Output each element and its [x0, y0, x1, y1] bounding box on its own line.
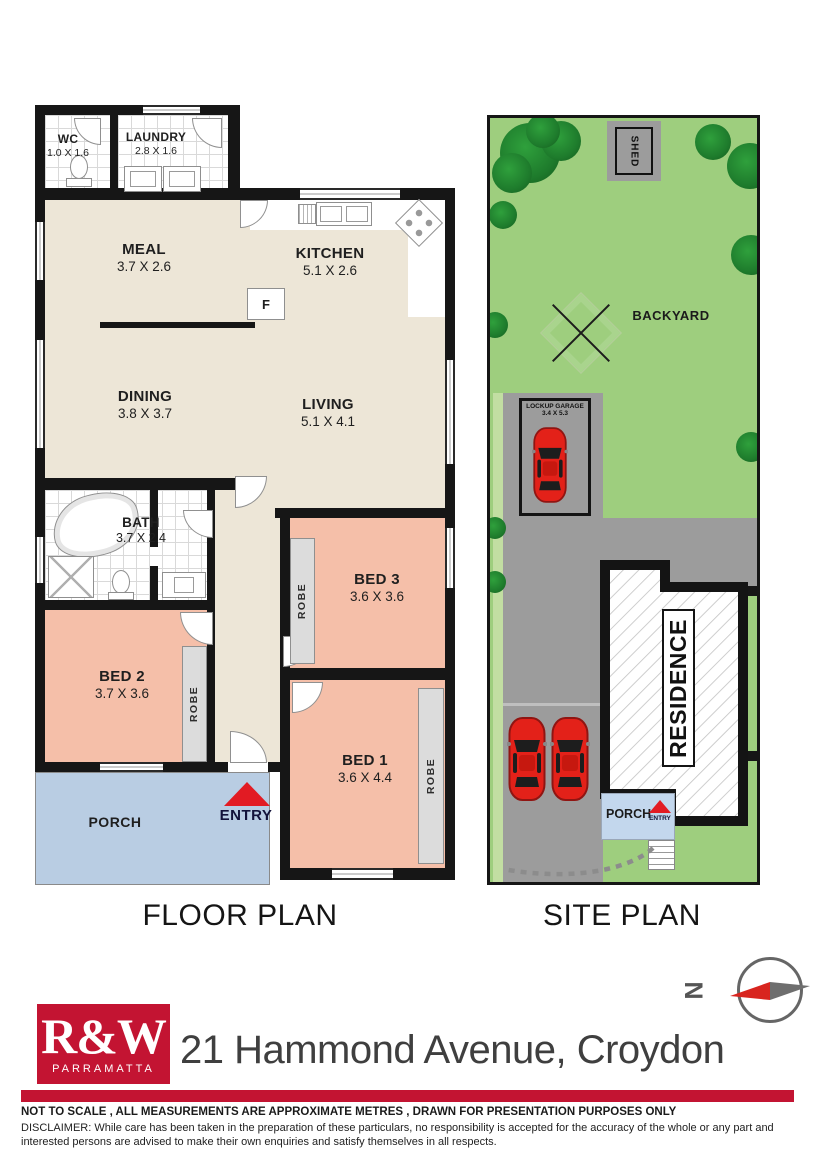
robe-bed2: ROBE: [182, 646, 207, 762]
robe-label: ROBE: [425, 758, 437, 794]
window: [445, 360, 455, 464]
fridge-icon: F: [247, 288, 285, 320]
sink-drainer-icon: [298, 204, 316, 224]
site-entry-label: ENTRY: [644, 815, 676, 822]
gate-line: [503, 703, 603, 706]
window: [332, 868, 393, 880]
tree: [731, 235, 760, 275]
room-label-living: LIVING5.1 X 4.1: [278, 396, 378, 429]
window: [35, 340, 45, 448]
room-label-dining: DINING3.8 X 3.7: [95, 388, 195, 421]
car-icon: [507, 715, 547, 803]
hall-floor: [215, 490, 280, 772]
room-label-bed1: BED 13.6 X 4.4: [315, 752, 415, 785]
footer-divider: [21, 1090, 794, 1102]
room-label-meal: MEAL3.7 X 2.6: [94, 241, 194, 274]
robe-label: ROBE: [297, 583, 309, 619]
window: [300, 188, 400, 200]
floor-plan-caption: FLOOR PLAN: [110, 899, 370, 933]
wall-segment: [150, 566, 158, 602]
site-plan: SHED BACKYARD LOCKUP GARAGE 3.4 X 5.3: [487, 115, 760, 885]
shed-label: SHED: [628, 135, 639, 167]
tree: [736, 432, 760, 462]
toilet-cistern-icon: [66, 178, 92, 187]
room-label-wc: WC1.0 X 1.6: [39, 132, 97, 159]
step-edge: [100, 322, 255, 328]
garden-strip: [493, 393, 503, 885]
stepping-stone-path: [498, 843, 668, 885]
site-plan-caption: SITE PLAN: [492, 899, 752, 933]
window: [35, 537, 45, 583]
site-porch: PORCH ENTRY: [601, 793, 675, 840]
wall-segment: [280, 668, 455, 680]
toilet-icon: [112, 570, 130, 594]
tree: [727, 143, 760, 189]
room-label-bed3: BED 33.6 X 3.6: [327, 571, 427, 604]
room-label-bath: BATH3.7 X 2.4: [95, 515, 187, 545]
wall-segment: [215, 762, 228, 772]
room-label-bed2: BED 23.7 X 3.6: [72, 668, 172, 701]
car-icon: [550, 715, 590, 803]
kitchen-sink-icon: [316, 202, 372, 226]
laundry-tub-icon: [163, 166, 201, 192]
window: [445, 528, 455, 588]
shower-icon: [48, 556, 94, 598]
laundry-tub-icon: [124, 166, 162, 192]
backyard-label: BACKYARD: [616, 308, 726, 323]
room-label-kitchen: KITCHEN5.1 X 2.6: [280, 245, 380, 278]
entry-label: ENTRY: [215, 807, 277, 824]
room-label-laundry: LAUNDRY2.8 X 1.6: [124, 130, 188, 157]
window: [100, 762, 163, 772]
disclaimer-text: DISCLAIMER: While care has been taken in…: [21, 1121, 794, 1150]
wall-segment: [35, 105, 240, 115]
robe-bed3: ROBE: [290, 538, 315, 664]
compass-north-label: N: [681, 981, 710, 999]
car-icon: [532, 423, 568, 507]
wall-segment: [110, 113, 118, 200]
flyer-page: F ROBE ROBE ROBE WC1.0 X 1.6 LAUNDRY2.8 …: [0, 0, 813, 1150]
agency-branch: PARRAMATTA: [52, 1063, 155, 1075]
window: [143, 105, 200, 115]
tree: [526, 115, 560, 148]
wall-segment: [228, 105, 240, 200]
site-entry-arrow-icon: [649, 800, 671, 813]
wall-segment: [35, 600, 215, 610]
front-door-opening: [228, 762, 268, 772]
compass: N: [680, 950, 813, 1030]
fridge-label: F: [262, 297, 270, 312]
robe-label: ROBE: [189, 686, 201, 722]
window: [35, 222, 45, 280]
agency-logo: R&W PARRAMATTA: [37, 1004, 170, 1084]
tree: [695, 124, 731, 160]
compass-needle-icon: [724, 974, 813, 1008]
residence-label: RESIDENCE: [665, 619, 692, 758]
porch-label: PORCH: [82, 814, 148, 830]
scale-note: NOT TO SCALE , ALL MEASUREMENTS ARE APPR…: [21, 1106, 794, 1118]
garage-dims-label: 3.4 X 5.3: [522, 410, 588, 417]
tree: [487, 312, 508, 338]
robe-bed1: ROBE: [418, 688, 444, 864]
property-address: 21 Hammond Avenue, Croydon: [180, 1024, 800, 1076]
residence-label-box: RESIDENCE: [662, 609, 695, 767]
shed: SHED: [615, 127, 653, 175]
wall-segment: [275, 508, 455, 518]
agency-name: R&W: [41, 1013, 166, 1061]
vanity-icon: [162, 572, 206, 598]
tree: [489, 201, 517, 229]
garage-label: LOCKUP GARAGE: [522, 403, 588, 410]
toilet-cistern-icon: [108, 592, 134, 600]
wall-segment: [268, 762, 280, 772]
wall-segment: [35, 478, 235, 490]
tree: [492, 153, 532, 193]
wall-segment: [280, 518, 290, 870]
entry-arrow-icon: [224, 782, 270, 806]
